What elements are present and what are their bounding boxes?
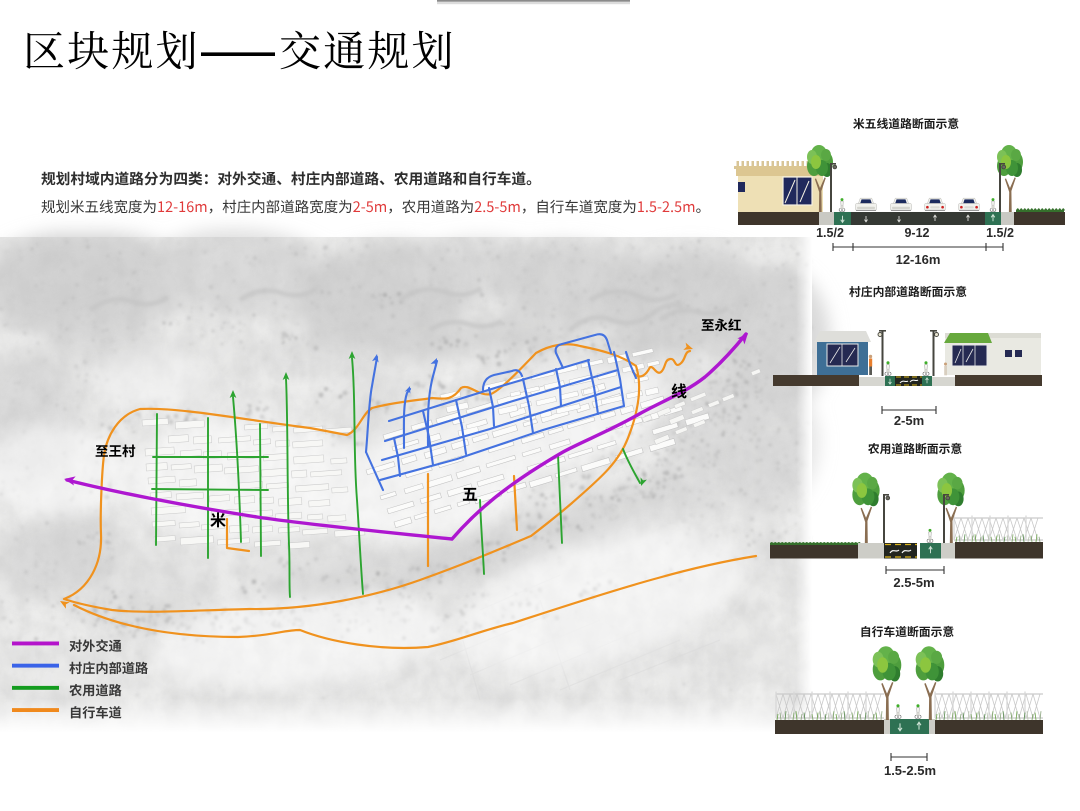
svg-text:12-16m: 12-16m xyxy=(896,252,941,267)
svg-text:2-5m: 2-5m xyxy=(894,413,924,428)
svg-text:9-12: 9-12 xyxy=(904,226,929,240)
svg-text:2.5-5m: 2.5-5m xyxy=(893,575,934,590)
svg-text:1.5-2.5m: 1.5-2.5m xyxy=(884,763,936,778)
svg-text:1.5/2: 1.5/2 xyxy=(816,226,844,240)
svg-text:1.5/2: 1.5/2 xyxy=(986,226,1014,240)
